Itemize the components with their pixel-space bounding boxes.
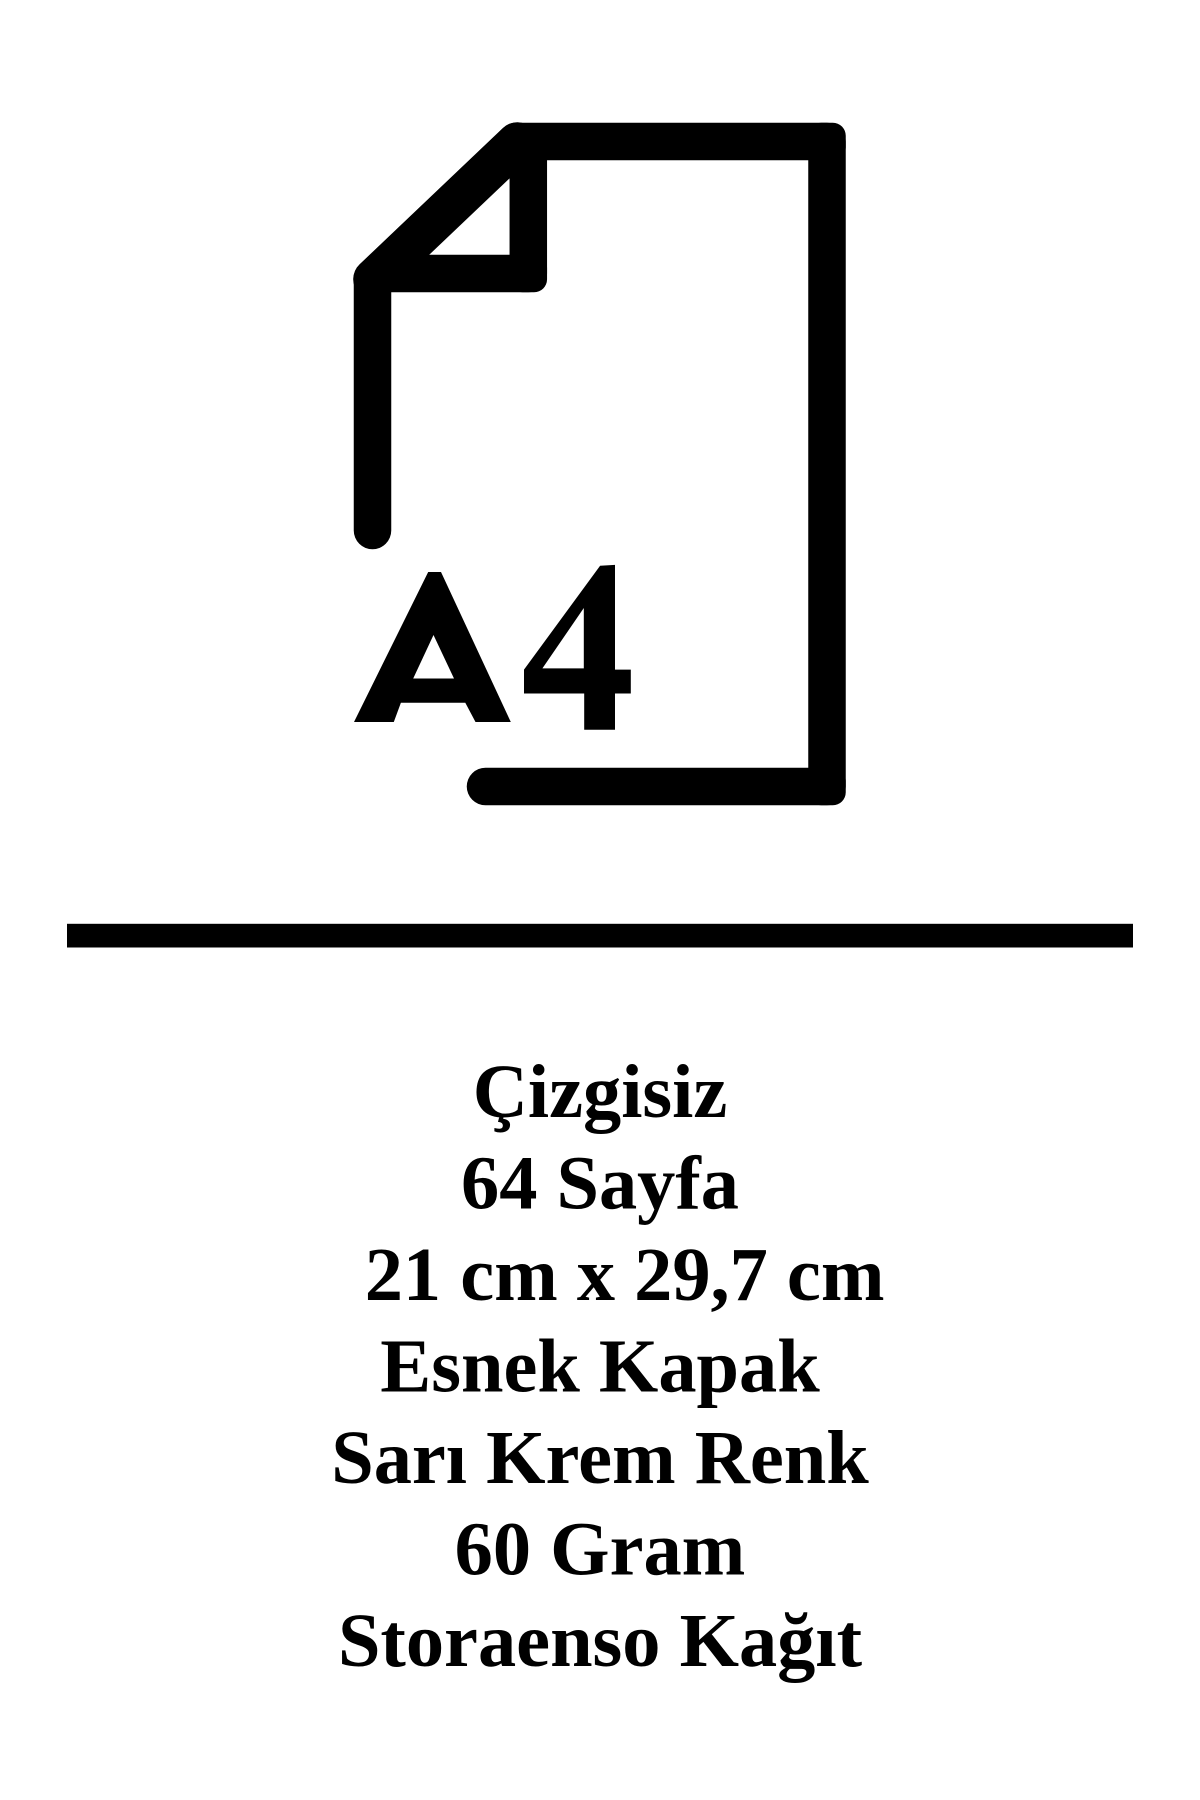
svg-text:Esnek Kapak: Esnek Kapak: [380, 1324, 820, 1409]
svg-text:Çizgisiz: Çizgisiz: [473, 1049, 728, 1134]
svg-text:Storaenso Kağıt: Storaenso Kağıt: [338, 1598, 863, 1683]
svg-text:21 cm x 29,7 cm: 21 cm x 29,7 cm: [365, 1232, 885, 1317]
svg-text:Sarı Krem Renk: Sarı Krem Renk: [331, 1415, 869, 1500]
svg-text:64 Sayfa: 64 Sayfa: [461, 1141, 739, 1226]
svg-text:60 Gram: 60 Gram: [455, 1507, 746, 1592]
